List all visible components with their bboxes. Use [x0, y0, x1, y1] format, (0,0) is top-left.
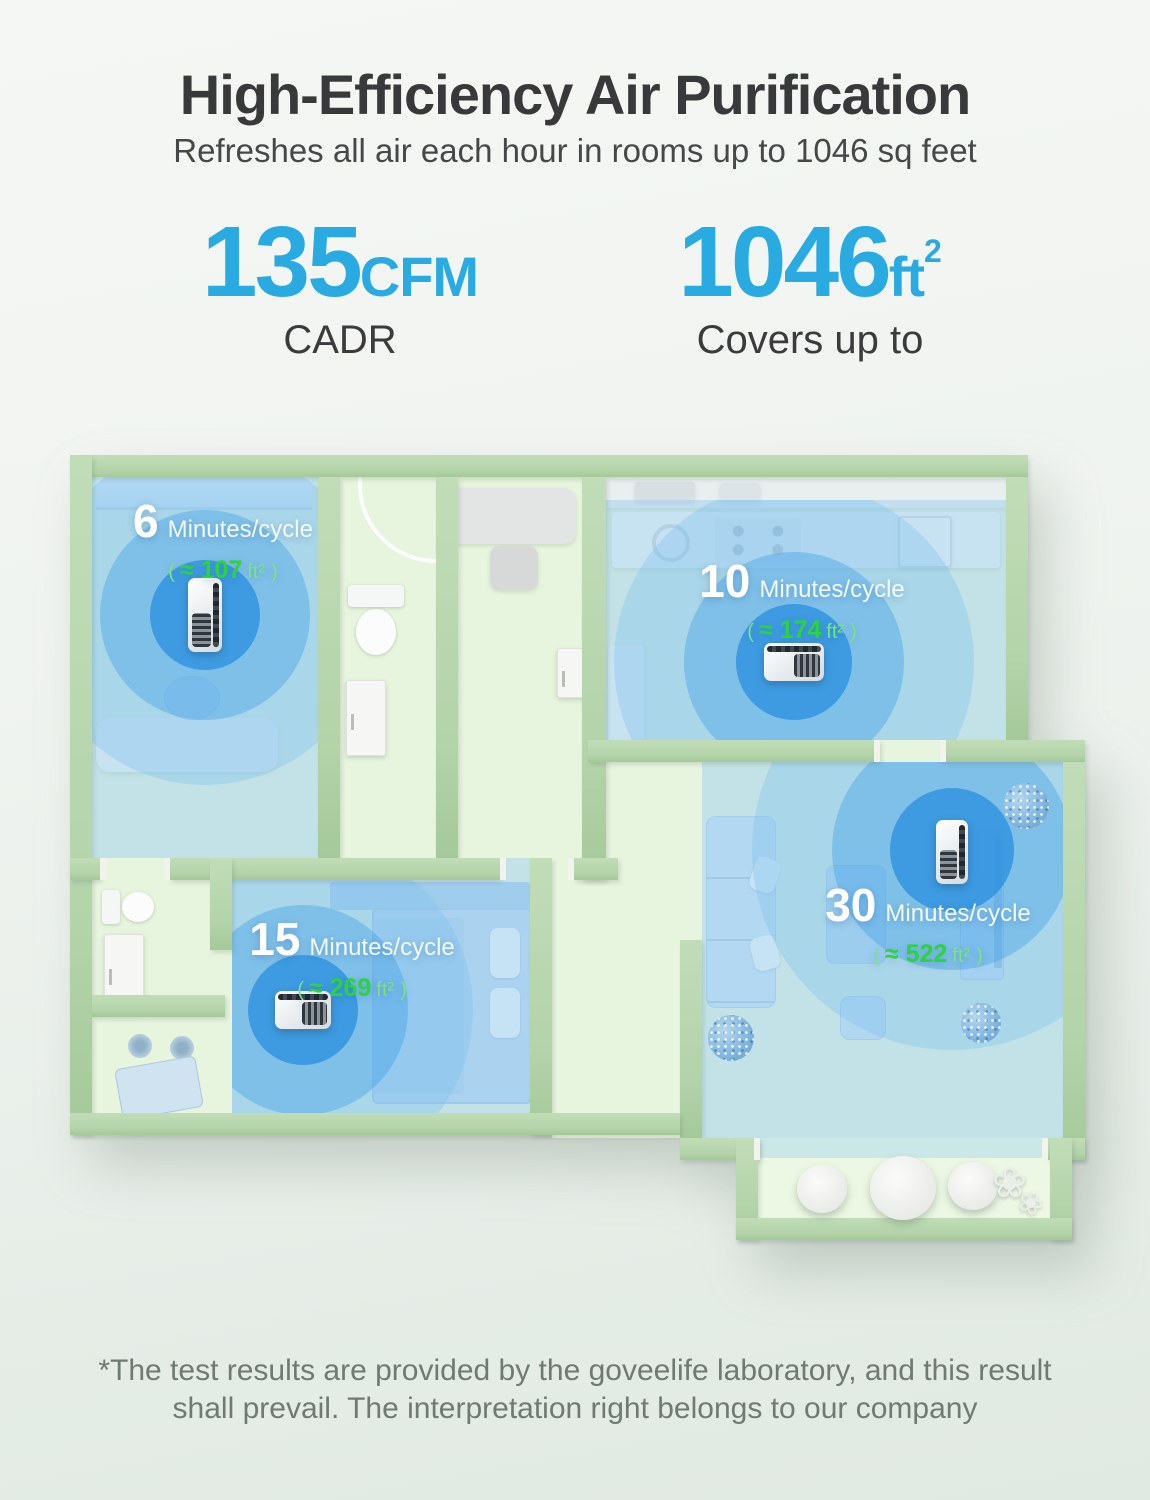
- stat-coverage-label: Covers up to: [620, 318, 1000, 363]
- stat-cadr-unit: CFM: [360, 244, 478, 309]
- bedroom-area-open: (: [297, 979, 304, 1001]
- footnote-line-1: *The test results are provided by the go…: [0, 1352, 1150, 1390]
- bathroom-shower-knob: [128, 1034, 152, 1058]
- study-area-open: (: [168, 561, 175, 583]
- air-purifier-living-room: [936, 820, 968, 884]
- room-label-study: 6Minutes/cycle (≈ 107ft²): [133, 494, 313, 585]
- wall-kitchen-living-b: [940, 740, 1085, 762]
- room-label-kitchen: 10Minutes/cycle (≈ 174ft²): [699, 554, 905, 645]
- wall-cap-3: [500, 858, 506, 880]
- wall-mid-a: [70, 858, 100, 880]
- wall-wc-hall: [436, 477, 458, 858]
- stat-coverage-number: 1046: [678, 212, 888, 312]
- room-label-living-room: 30Minutes/cycle (≈ 522ft²): [825, 878, 1031, 969]
- wall-kitchen-right: [1006, 477, 1028, 740]
- wall-hall-kitchen: [582, 477, 606, 880]
- living-area-close: ): [976, 945, 983, 967]
- wall-bottom-left: [70, 1113, 680, 1135]
- stat-cadr-value: 135 CFM: [170, 212, 510, 312]
- floor-doorway: [874, 740, 946, 762]
- air-purifier-kitchen: [764, 643, 824, 681]
- living-plant-top: [1003, 783, 1049, 829]
- wall-bedroom-right: [530, 858, 552, 1135]
- study-minutes-row: 6Minutes/cycle: [133, 494, 313, 548]
- living-cycle-label: Minutes/cycle: [885, 900, 1030, 927]
- kitchen-area-unit: ft²: [826, 621, 844, 643]
- kitchen-area-open: (: [747, 621, 754, 643]
- stat-cadr-number: 135: [202, 212, 360, 312]
- study-area-value: ≈ 107: [180, 556, 242, 584]
- hall-chair: [490, 546, 538, 590]
- kitchen-area-close: ): [850, 621, 857, 643]
- bathroom-toilet: [102, 890, 154, 924]
- balcony-stone-2: [870, 1156, 936, 1220]
- kitchen-shelf-item-2: [720, 483, 760, 501]
- page-subtitle: Refreshes all air each hour in rooms up …: [0, 132, 1150, 170]
- study-minutes: 6: [133, 495, 159, 547]
- balcony-stone-3: [948, 1162, 998, 1210]
- bedroom-area: (≈ 269ft²): [249, 974, 455, 1003]
- bedroom-cycle-label: Minutes/cycle: [309, 934, 454, 961]
- stat-coverage-unit: ft: [889, 244, 924, 309]
- living-area-open: (: [873, 945, 880, 967]
- kitchen-cycle-label: Minutes/cycle: [759, 576, 904, 603]
- bedroom-area-value: ≈ 269: [309, 974, 371, 1002]
- wall-bathroom-stub-v: [210, 858, 232, 950]
- kitchen-shelf-item: [635, 482, 695, 502]
- room-label-bedroom: 15Minutes/cycle (≈ 269ft²): [249, 912, 455, 1003]
- air-purifier-study: [188, 578, 222, 652]
- wall-cap-7: [754, 1138, 760, 1160]
- living-area: (≈ 522ft²): [825, 940, 1031, 969]
- study-area: (≈ 107ft²): [133, 556, 313, 585]
- wall-kitchen-living-a: [588, 740, 880, 762]
- living-minutes-row: 30Minutes/cycle: [825, 878, 1031, 932]
- study-area-close: ): [271, 561, 278, 583]
- kitchen-minutes-row: 10Minutes/cycle: [699, 554, 905, 608]
- wall-living-right: [1063, 762, 1085, 1160]
- wc-door: [346, 680, 386, 756]
- living-area-value: ≈ 522: [885, 940, 947, 968]
- stat-coverage: 1046 ft 2 Covers up to: [620, 212, 1000, 363]
- wall-cap-4: [568, 858, 574, 880]
- wall-top: [70, 455, 1028, 477]
- wall-study-wc: [318, 477, 340, 858]
- wall-living-left: [680, 940, 702, 1138]
- wall-cap-8: [1042, 1138, 1048, 1160]
- stat-coverage-value: 1046 ft 2: [620, 212, 1000, 312]
- footnote-line-2: shall prevail. The interpretation right …: [0, 1390, 1150, 1428]
- hall-door: [557, 648, 585, 698]
- kitchen-area: (≈ 174ft²): [699, 616, 905, 645]
- balcony-stone-1: [797, 1165, 847, 1213]
- page-title: High-Efficiency Air Purification: [0, 62, 1150, 127]
- floor-plan: ❀ ❀ 6Minutes/cycle (≈ 107ft²) 10Minutes/…: [60, 450, 1100, 1245]
- wall-cap-6: [940, 740, 946, 762]
- coverage-bleed-balcony: [758, 1138, 1050, 1158]
- study-cycle-label: Minutes/cycle: [168, 516, 313, 543]
- kitchen-area-value: ≈ 174: [759, 616, 821, 644]
- wall-bathroom-stub-h: [92, 995, 225, 1017]
- hall-desk: [448, 488, 576, 544]
- wall-balcony-bottom: [736, 1218, 1072, 1240]
- bedroom-area-close: ): [400, 979, 407, 1001]
- wall-cap-1: [100, 858, 106, 880]
- bedroom-minutes: 15: [249, 913, 300, 965]
- living-area-unit: ft²: [952, 945, 970, 967]
- living-plant-left: [708, 1015, 754, 1061]
- infographic-page: { "header": { "title": "High-Efficiency …: [0, 0, 1150, 1500]
- kitchen-minutes: 10: [699, 555, 750, 607]
- living-minutes: 30: [825, 879, 876, 931]
- wall-cap-5: [874, 740, 880, 762]
- living-plant-right: [961, 1003, 1001, 1043]
- study-area-unit: ft²: [247, 561, 265, 583]
- stat-cadr: 135 CFM CADR: [170, 212, 510, 363]
- stat-cadr-label: CADR: [170, 318, 510, 363]
- stat-coverage-superscript: 2: [924, 233, 942, 270]
- wall-mid-c: [574, 858, 618, 880]
- footnote: *The test results are provided by the go…: [0, 1352, 1150, 1428]
- wall-cap-2: [164, 858, 170, 880]
- bedroom-minutes-row: 15Minutes/cycle: [249, 912, 455, 966]
- wall-left-outer: [70, 455, 92, 1135]
- wc-toilet: [348, 585, 404, 657]
- bedroom-area-unit: ft²: [376, 979, 394, 1001]
